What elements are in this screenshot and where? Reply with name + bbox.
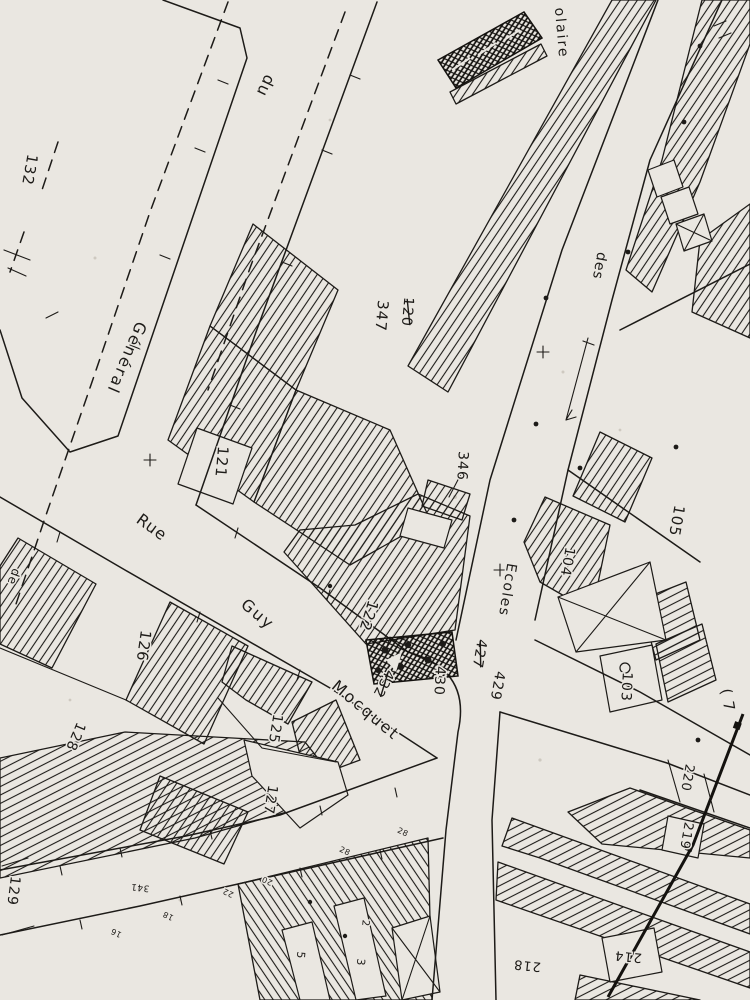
label-parcel-214: 214 [613,947,642,965]
svg-text:3: 3 [354,958,368,966]
label-plot-3: 3 [354,958,368,966]
svg-text:218: 218 [512,956,541,974]
svg-text:341: 341 [130,881,150,893]
svg-text:347: 347 [371,299,392,332]
map-canvas: 132duolairedesEcolesGénéralRueGuyMocquet… [0,0,750,1000]
svg-text:5: 5 [294,951,308,959]
label-parcel-121: 121 [211,445,232,478]
label-parcel-347: 347 [371,299,392,332]
label-parcel-120-struck: 120 [398,296,417,327]
svg-text:430: 430 [430,666,448,697]
label-parcel-103: 103 [617,672,635,703]
svg-text:121: 121 [211,445,232,478]
svg-text:103: 103 [617,672,635,703]
label-house-341: 341 [130,881,150,893]
label-plot-5: 5 [294,951,308,959]
svg-text:2: 2 [359,919,371,926]
svg-text:346: 346 [453,451,471,482]
label-parcel-346: 346 [453,451,471,482]
svg-text:214: 214 [613,947,642,965]
scanned-cadastral-map: 132duolairedesEcolesGénéralRueGuyMocquet… [0,0,750,1000]
label-plot-2: 2 [359,919,371,926]
label-parcel-218: 218 [512,956,541,974]
label-parcel-430: 430 [430,666,448,697]
